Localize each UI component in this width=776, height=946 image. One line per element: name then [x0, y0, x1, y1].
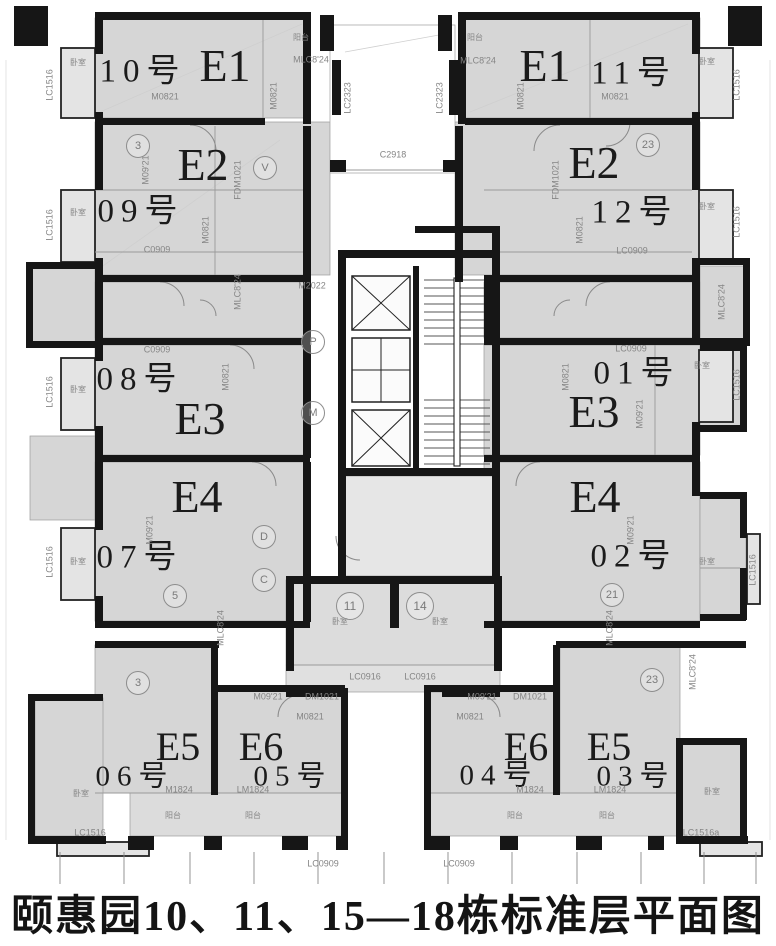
stairs	[424, 278, 490, 466]
plan-caption: 颐惠园10、11、15—18栋标准层平面图	[0, 882, 776, 943]
floor-plan-drawing	[0, 0, 776, 946]
dimension-ticks	[60, 852, 756, 884]
floor-plan: E1E1E2E2E3E3E4E4E5E6E6E510号09号08号07号06号0…	[0, 0, 776, 946]
elevator-core	[352, 276, 410, 466]
